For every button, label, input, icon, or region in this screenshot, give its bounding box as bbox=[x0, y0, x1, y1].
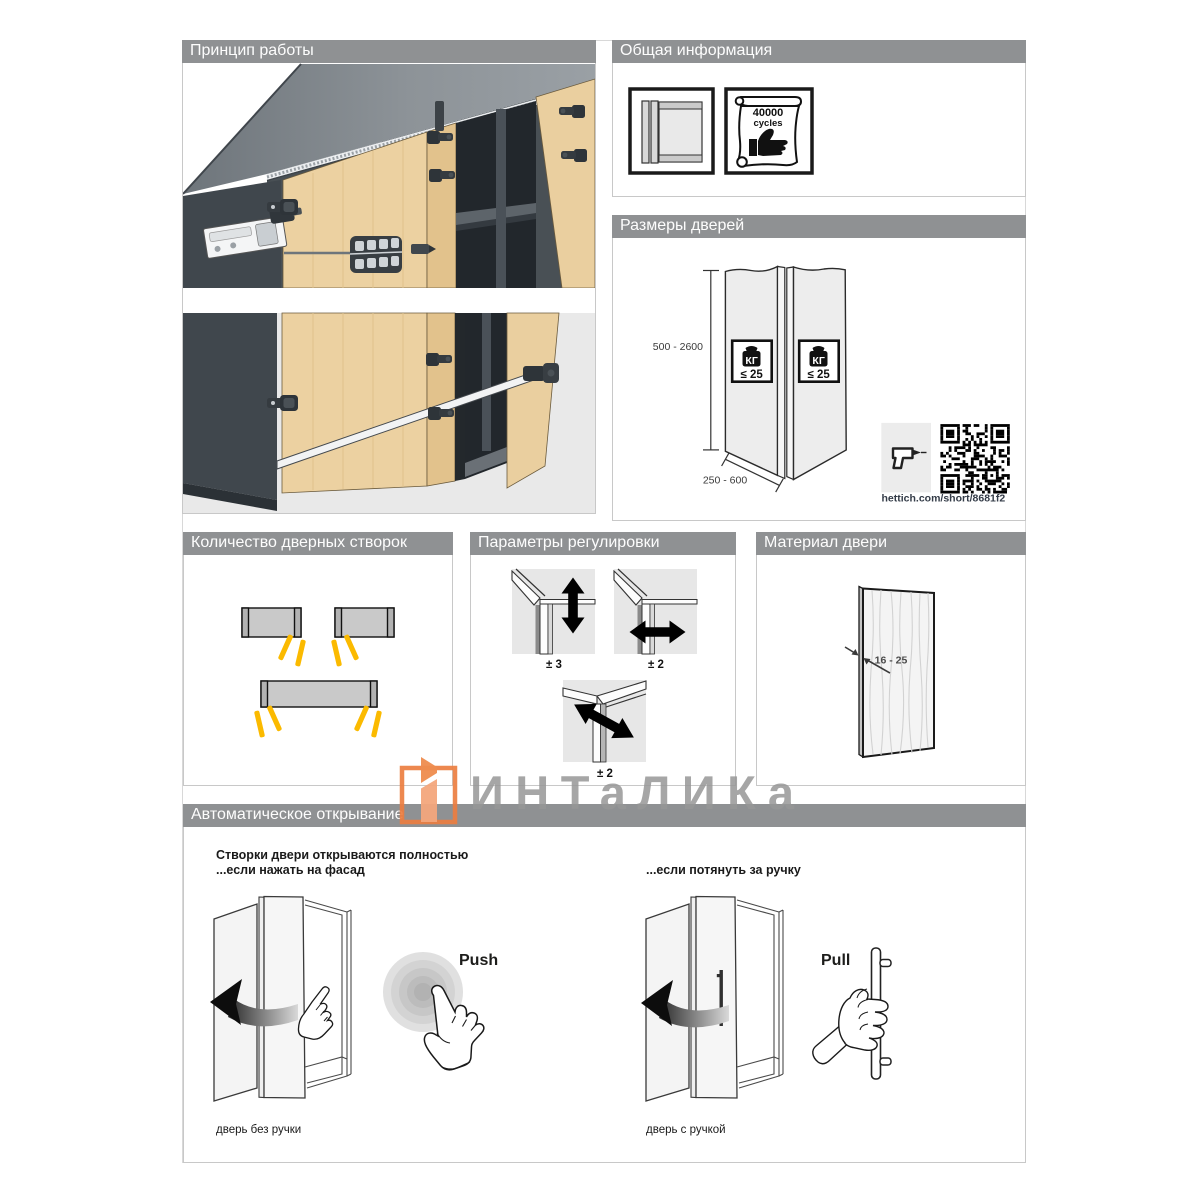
svg-text:≤ 25: ≤ 25 bbox=[741, 369, 764, 381]
svg-text:cycles: cycles bbox=[753, 118, 782, 129]
svg-text:16 - 25: 16 - 25 bbox=[875, 655, 908, 667]
svg-text:дверь с ручкой: дверь с ручкой bbox=[646, 1124, 726, 1136]
svg-text:...если потянуть за ручку: ...если потянуть за ручку bbox=[646, 863, 801, 877]
svg-text:Створки двери открываются полн: Створки двери открываются полностью bbox=[216, 848, 469, 862]
svg-text:500 - 2600: 500 - 2600 bbox=[653, 341, 703, 353]
svg-text:≤ 25: ≤ 25 bbox=[808, 369, 831, 381]
svg-text:Pull: Pull bbox=[821, 952, 850, 969]
svg-text:дверь без ручки: дверь без ручки bbox=[216, 1124, 301, 1136]
svg-text:hettich.com/short/8681f2: hettich.com/short/8681f2 bbox=[882, 493, 1006, 505]
svg-text:250 - 600: 250 - 600 bbox=[703, 475, 748, 487]
svg-text:± 2: ± 2 bbox=[648, 659, 664, 671]
svg-text:Push: Push bbox=[459, 952, 498, 969]
svg-text:...если нажать на фасад: ...если нажать на фасад bbox=[216, 863, 365, 877]
svg-text:КГ: КГ bbox=[745, 355, 757, 367]
svg-text:КГ: КГ bbox=[812, 355, 824, 367]
svg-text:± 3: ± 3 bbox=[546, 659, 562, 671]
